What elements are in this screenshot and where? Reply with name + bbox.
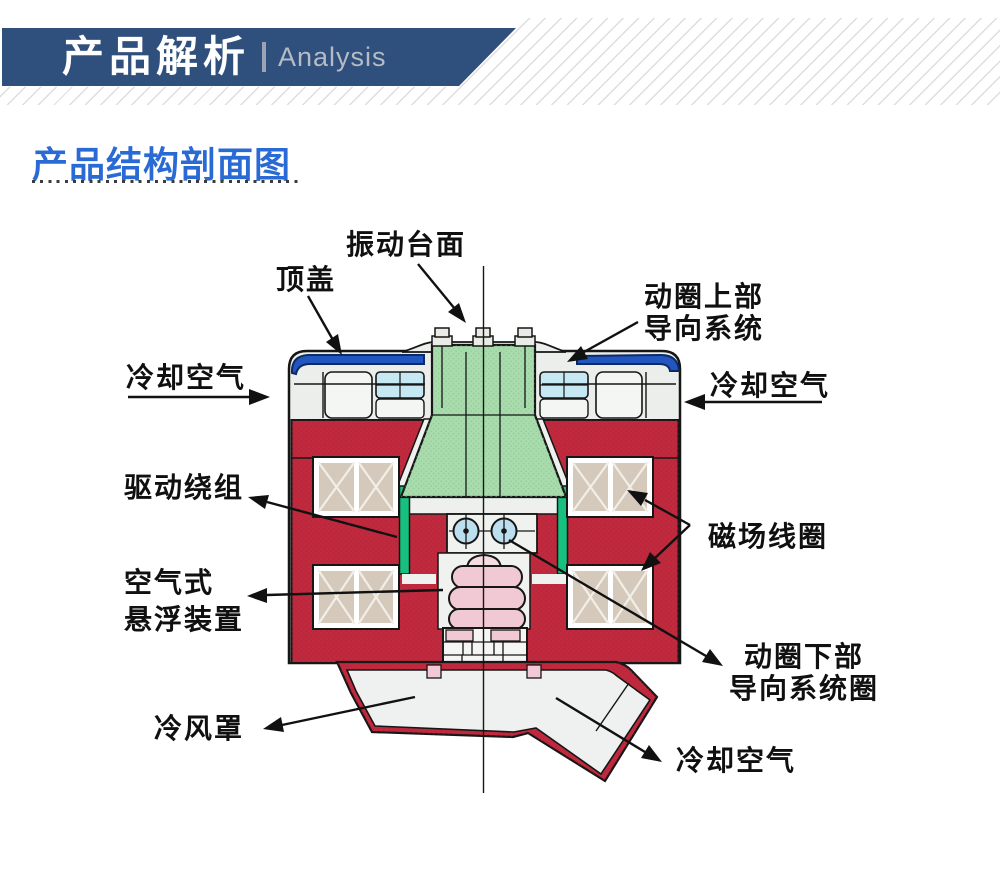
field-coil-lower-left <box>313 565 399 629</box>
field-coil-lower-right <box>567 565 653 629</box>
cold-air-hood-shape <box>337 662 657 781</box>
label-cooling-air-bottom: 冷却空气 <box>676 745 796 777</box>
label-cooling-air-right: 冷却空气 <box>710 370 830 402</box>
label-air-suspension: 空气式 悬浮装置 <box>124 564 244 638</box>
label-cooling-air-left: 冷却空气 <box>126 362 246 394</box>
label-top-cover: 顶盖 <box>276 264 336 296</box>
label-vibration-table: 振动台面 <box>346 229 466 261</box>
label-drive-winding: 驱动绕组 <box>124 472 244 504</box>
pointer-vibration-table <box>418 264 466 323</box>
machine-diagram <box>0 0 1000 876</box>
field-coil-upper-right <box>567 457 653 517</box>
label-coil-lower-guide: 动圈下部 导向系统圈 <box>728 641 880 705</box>
pointer-top-cover <box>308 296 342 355</box>
label-cold-air-hood: 冷风罩 <box>154 713 244 745</box>
field-coil-upper-left <box>313 457 399 517</box>
label-field-coil: 磁场线圈 <box>708 521 828 553</box>
label-coil-upper-guide: 动圈上部 导向系统 <box>636 281 772 345</box>
